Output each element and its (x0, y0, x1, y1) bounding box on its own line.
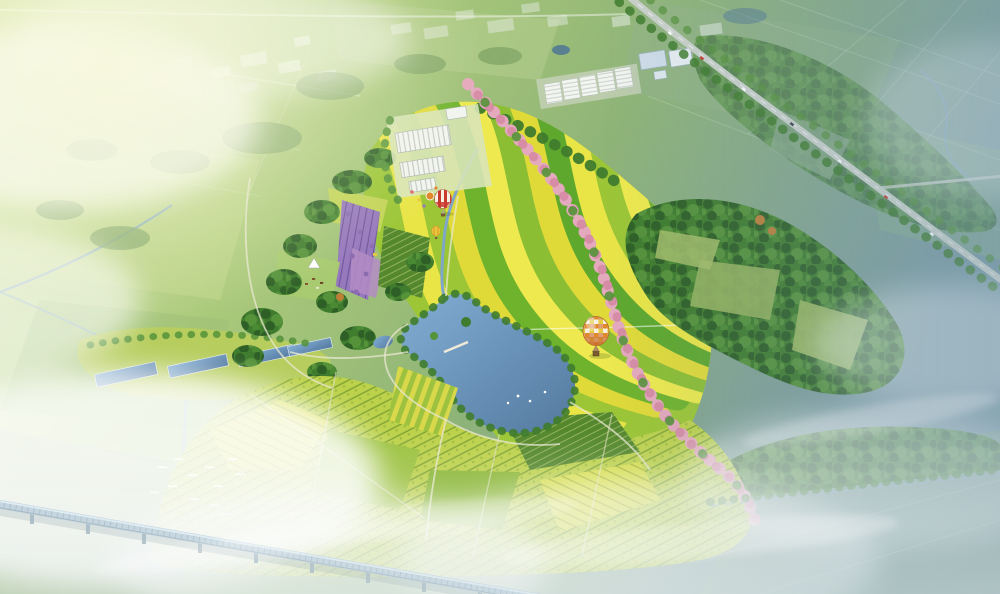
lake-island-small (430, 332, 438, 340)
farm-pond (552, 45, 570, 55)
scene-canvas (0, 0, 1000, 594)
aerial-masterplan-rendering (0, 0, 1000, 594)
warm-glow-topleft (0, 0, 480, 330)
